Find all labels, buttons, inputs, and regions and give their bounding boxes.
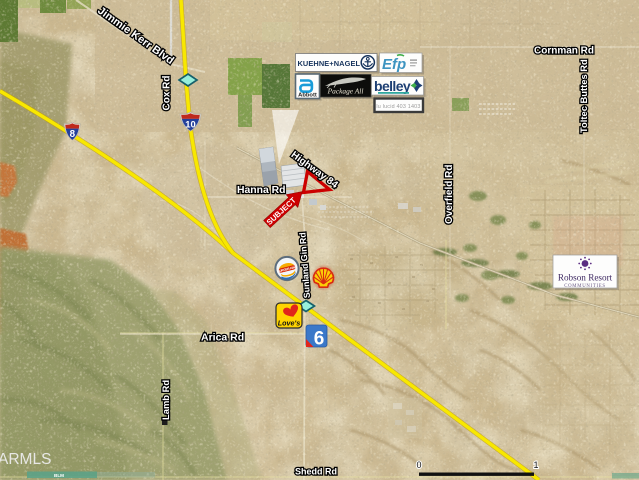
svg-text:6: 6	[314, 329, 325, 350]
svg-text:Toltec Buttes Rd: Toltec Buttes Rd	[578, 59, 589, 133]
svg-text:lu lucid 403 1403: lu lucid 403 1403	[376, 104, 420, 110]
svg-text:Abbott: Abbott	[298, 93, 317, 99]
svg-text:1: 1	[533, 460, 538, 470]
svg-text:0: 0	[416, 460, 421, 470]
svg-text:Shedd Rd: Shedd Rd	[295, 467, 337, 477]
svg-text:Cornman Rd: Cornman Rd	[534, 46, 594, 57]
svg-text:KUEHNE+NAGEL: KUEHNE+NAGEL	[298, 59, 361, 68]
svg-text:Cox Rd: Cox Rd	[162, 76, 173, 111]
svg-text:Robson Resort: Robson Resort	[558, 273, 613, 283]
svg-text:Hanna Rd: Hanna Rd	[237, 185, 286, 196]
svg-text:Efp: Efp	[382, 56, 406, 73]
svg-text:BLM: BLM	[54, 473, 64, 478]
svg-text:8: 8	[70, 129, 76, 140]
svg-text:10: 10	[185, 118, 195, 129]
svg-text:ARMLS: ARMLS	[0, 451, 51, 468]
svg-text:Love's: Love's	[278, 318, 300, 327]
svg-text:belley: belley	[374, 78, 411, 94]
svg-text:Lamb Rd: Lamb Rd	[160, 380, 171, 420]
svg-text:Package All: Package All	[327, 87, 364, 96]
svg-text:Arica Rd: Arica Rd	[201, 332, 244, 344]
svg-text:Overfield Rd: Overfield Rd	[444, 165, 455, 224]
svg-text:COMMUNITIES: COMMUNITIES	[564, 284, 606, 289]
